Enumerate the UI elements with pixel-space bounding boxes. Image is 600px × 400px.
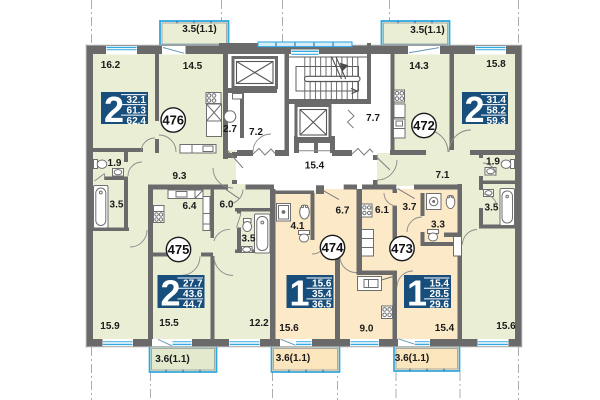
svg-text:4.1: 4.1 [291,221,305,232]
svg-text:2: 2 [464,89,484,130]
svg-text:12.2: 12.2 [249,318,269,329]
svg-text:28.5: 28.5 [430,289,450,300]
svg-text:1.9: 1.9 [108,158,122,169]
svg-text:7.2: 7.2 [249,127,263,138]
svg-text:15.4: 15.4 [430,278,450,289]
svg-text:6.1: 6.1 [375,205,389,216]
svg-text:1.9: 1.9 [486,157,500,168]
svg-text:43.6: 43.6 [183,289,203,300]
svg-text:16.2: 16.2 [101,60,121,71]
svg-text:9.0: 9.0 [360,324,374,335]
svg-text:29.6: 29.6 [430,300,450,311]
svg-text:9.3: 9.3 [173,171,187,182]
svg-text:1: 1 [289,273,309,314]
svg-text:15.6: 15.6 [496,321,516,332]
svg-text:62.4: 62.4 [127,116,147,127]
svg-text:15.8: 15.8 [486,59,506,70]
svg-text:3.5(1.1): 3.5(1.1) [410,25,444,36]
svg-text:3.6(1.1): 3.6(1.1) [395,353,429,364]
svg-text:6.7: 6.7 [336,206,350,217]
svg-text:14.5: 14.5 [183,61,203,72]
svg-text:6.0: 6.0 [220,200,234,211]
svg-text:3.5: 3.5 [242,234,256,245]
svg-text:2.7: 2.7 [223,124,237,135]
svg-text:15.6: 15.6 [279,323,299,334]
svg-text:2: 2 [160,273,180,314]
svg-text:7.7: 7.7 [366,113,380,124]
svg-text:3.5(1.1): 3.5(1.1) [182,24,216,35]
svg-text:15.4: 15.4 [435,323,455,334]
svg-text:36.5: 36.5 [312,300,332,311]
svg-text:15.5: 15.5 [159,318,179,329]
svg-text:15.4: 15.4 [305,161,325,172]
svg-text:473: 473 [391,241,413,256]
svg-text:14.3: 14.3 [409,61,429,72]
svg-text:6.4: 6.4 [183,201,197,212]
svg-text:15.9: 15.9 [100,321,120,332]
svg-text:475: 475 [168,242,190,257]
svg-text:2: 2 [104,89,124,130]
svg-text:3.5: 3.5 [110,200,124,211]
svg-text:3.7: 3.7 [403,202,417,213]
svg-text:1: 1 [407,273,427,314]
svg-text:59.3: 59.3 [487,116,507,127]
svg-text:44.7: 44.7 [183,300,203,311]
svg-text:3.6(1.1): 3.6(1.1) [276,353,310,364]
svg-text:27.7: 27.7 [183,278,203,289]
svg-text:474: 474 [322,240,344,255]
svg-text:35.4: 35.4 [312,289,332,300]
svg-text:476: 476 [162,113,184,128]
svg-text:472: 472 [413,118,435,133]
svg-text:7.1: 7.1 [436,170,450,181]
svg-text:3.3: 3.3 [431,220,445,231]
svg-text:3.5: 3.5 [485,203,499,214]
svg-text:15.6: 15.6 [312,278,332,289]
svg-text:3.6(1.1): 3.6(1.1) [155,354,189,365]
